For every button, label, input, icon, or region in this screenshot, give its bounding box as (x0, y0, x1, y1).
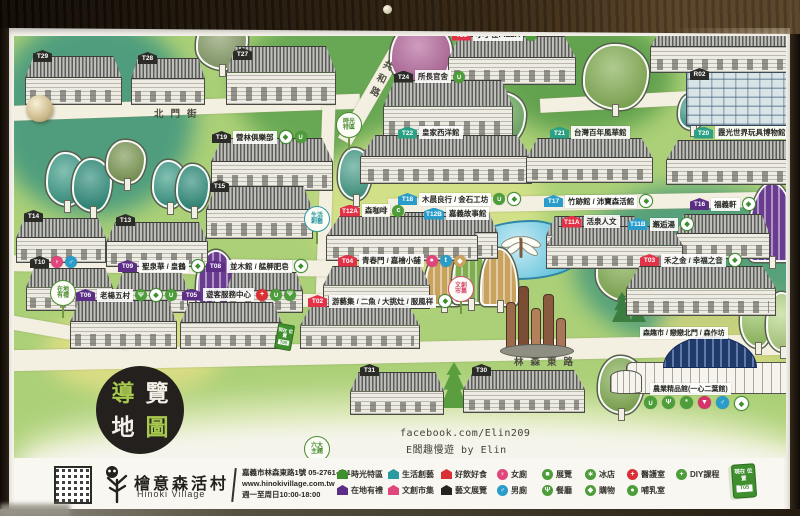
drink-icon: ∪ (644, 396, 657, 409)
marker-T30: T30 (472, 364, 491, 376)
marker-T08: T08 (206, 260, 225, 272)
cross-icon: + (256, 289, 268, 301)
legend-label: 冰店 (599, 469, 615, 480)
contact-info: 嘉義市林森東路1號 05-2761-601 www.hinokivillage.… (242, 467, 351, 500)
poi-T06: T06老楊五村Ψ◆∪ (76, 288, 177, 302)
photo-edge-right (790, 0, 800, 516)
legend-item: +醫護室 (627, 468, 665, 480)
marker-T17: T17 (544, 195, 563, 207)
legend-house-marker (388, 469, 399, 479)
legend-house-marker (337, 485, 348, 495)
address: 嘉義市林森東路1號 05-2761-601 (242, 467, 351, 478)
legend-label: DIY課程 (690, 469, 719, 480)
poi-name: 皇家西洋館 (419, 126, 463, 139)
marker-T28: T28 (138, 52, 157, 64)
building (16, 218, 106, 260)
building (70, 300, 177, 346)
photo-edge-bottom (0, 509, 800, 516)
poi-T27: T27 (233, 48, 252, 60)
building-body (650, 47, 786, 73)
marker-T20: T20 (694, 127, 713, 139)
dome-annex (610, 370, 642, 394)
brand-name-en: Hinoki Village (137, 489, 205, 499)
qr-code (54, 466, 92, 504)
marker-T12A: T12A (340, 205, 360, 217)
legend-item: ●哺乳室 (627, 484, 665, 496)
legend-label: 男廁 (511, 485, 527, 496)
legend-house-marker (441, 469, 452, 479)
credit-facebook: facebook.com/Elin209 (400, 428, 530, 439)
marker-R02: R02 (690, 68, 709, 80)
poi-T29: T29 (33, 50, 52, 62)
legend-item: 在地有禮 (337, 484, 383, 496)
building-roof (300, 306, 420, 326)
poi-name: 聖泉華 / 皇鶴 (139, 260, 189, 273)
poi-T12B: T12B嘉義故事館 (424, 207, 489, 220)
male-icon: ♂ (716, 396, 729, 409)
nursing-icon: ● (627, 485, 638, 496)
food-icon: Ψ (662, 396, 675, 409)
female-icon: ♀ (497, 469, 508, 480)
poi-T04: T04青春門 / 嘉檜小舖●t◆ (338, 254, 466, 267)
marker-T29: T29 (33, 50, 52, 62)
building (300, 306, 420, 346)
legend-item: 時光特區 (337, 468, 383, 480)
marker-T02: T02 (308, 295, 327, 307)
round-tree (106, 140, 146, 184)
poi-T17: T17竹跡館 / 沛寶森活館◆ (544, 194, 653, 208)
legend-label: 醫護室 (641, 469, 665, 480)
legend-item: ∗冰店 (585, 468, 615, 480)
hours: 週一至周日10:00-18:00 (242, 489, 351, 500)
diy-icon: + (676, 469, 687, 480)
drink-icon: ∪ (295, 131, 307, 143)
legend-column: 好飲好食藝文展覽 (441, 468, 487, 496)
legend-column: 生活創藝文創市集 (388, 468, 434, 496)
round-tree (176, 164, 210, 212)
website: www.hinokivillage.com.tw (242, 478, 351, 489)
building (626, 266, 776, 313)
legend-label: 購物 (599, 485, 615, 496)
key-icon: t (440, 255, 452, 267)
poi-name: 福義軒 (711, 198, 740, 211)
photo-of-map-sign: { "sign_title": {"guide_chars": ["導", "覽… (0, 0, 800, 516)
marker-T09: T09 (118, 260, 137, 272)
photo-icon: ● (426, 255, 438, 267)
poi-T14: T14 (24, 210, 43, 222)
building (131, 58, 205, 102)
food-icon: Ψ (525, 36, 537, 41)
drink-icon: ∪ (453, 71, 465, 83)
legend-label: 餐廳 (556, 485, 572, 496)
legend-label: 文創市集 (402, 485, 434, 496)
photo-edge-left (0, 0, 9, 516)
poi-T20: T20霞光世界玩具博物館 (694, 126, 786, 139)
building-body (70, 322, 177, 349)
marker-T11B: T11B (628, 218, 648, 230)
coffee-icon: c (392, 205, 404, 217)
poi-T10: T10♀♂ (30, 256, 77, 268)
marker-T22: T22 (398, 127, 417, 139)
poi-T11B: T11B邂逅湯◆ (628, 217, 694, 231)
marker-T04: T04 (338, 255, 357, 267)
building (350, 372, 444, 412)
poi-T30: T30 (472, 364, 491, 376)
marker-T13: T13 (116, 214, 135, 226)
poi-T28: T28 (138, 52, 157, 64)
you-are-here-label: 現在 位置 (278, 327, 293, 339)
marker-T19: T19 (212, 131, 231, 143)
building (326, 216, 478, 258)
poi-name: 森咖啡 (362, 204, 391, 217)
sculpture-base (500, 344, 574, 358)
building (650, 36, 786, 70)
area-tag: 時光特區 (336, 112, 362, 138)
building (448, 36, 576, 82)
poi-name: 所長官舍 (415, 70, 451, 83)
area-tag: 文創市集 (448, 276, 474, 302)
street-label-beimen: 北門街 (154, 106, 204, 120)
poi-name: 營林俱樂部 (233, 131, 277, 144)
legend-item: +DIY課程 (676, 468, 719, 480)
concrete-corner (0, 504, 70, 516)
poi-name: 老楊五村 (97, 289, 133, 302)
poi-T08: T08並木館 / 艋舺肥皂◆ (206, 259, 308, 273)
guide-char: 地 (112, 416, 135, 439)
poi-name: 木晨良行 / 金石工坊 (419, 193, 491, 206)
marker-T16: T16 (690, 198, 709, 210)
building (463, 370, 585, 410)
legend-item: 好飲好食 (441, 468, 487, 480)
marker-T05: T05 (182, 289, 201, 301)
building-roof (666, 140, 786, 160)
legend-label: 哺乳室 (641, 485, 665, 496)
food-icon: Ψ (135, 289, 147, 301)
legend-label: 時光特區 (351, 469, 383, 480)
area-tag-stem (62, 305, 64, 318)
wood-column-sculpture (506, 280, 566, 354)
guide-map-title: 導 覽 地 圖 (96, 366, 184, 454)
area-tag: 在地有禮 (50, 280, 76, 306)
building (206, 186, 313, 236)
poi-name: 游藝集 / 二魚 / 大挑灶 / 服風祥 (329, 295, 436, 308)
legend-label: 好飲好食 (455, 469, 487, 480)
marker-T15: T15 (210, 180, 229, 192)
poi-name: 嘉義故事館 (446, 207, 490, 220)
poi-T31: T31 (360, 364, 379, 376)
marker-T14: T14 (24, 210, 43, 222)
marker-T24: T24 (394, 71, 413, 83)
legend-item: Ψ餐廳 (542, 484, 572, 496)
male-icon: ♂ (497, 485, 508, 496)
marker-T21: T21 (550, 127, 569, 139)
food-icon: Ψ (284, 289, 296, 301)
divider (231, 468, 237, 502)
poi-T21: T21台灣百年風華館 (550, 126, 630, 139)
building (180, 302, 282, 346)
poi-name: 禾之金 / 幸福之音 (661, 254, 726, 267)
poi-T18: T18木晨良行 / 金石工坊∪◆ (398, 192, 521, 206)
poi-T09: T09聖泉華 / 皇鶴◆ (118, 259, 205, 273)
bag-icon: ◆ (191, 259, 205, 273)
building-body (666, 160, 786, 185)
bag-icon: ◆ (680, 217, 694, 231)
male-icon: ♂ (65, 256, 77, 268)
marker-T10: T10 (30, 256, 49, 268)
building-roof (323, 266, 430, 286)
area-tag-stem (348, 137, 350, 150)
building (526, 138, 653, 180)
guide-char: 圖 (146, 416, 169, 439)
marker-T06: T06 (76, 289, 95, 301)
credit-byline: E闆趣慢遊 by Elin (406, 441, 507, 456)
legend-band: 檜意森活村 Hinoki Village 嘉義市林森東路1號 05-2761-6… (14, 458, 784, 510)
legend-item: ♂男廁 (497, 484, 527, 496)
poi-R02: R02 (690, 68, 709, 80)
bag-icon: ◆ (742, 197, 756, 211)
legend-house-marker (337, 469, 348, 479)
legend-item: ■展覽 (542, 468, 572, 480)
mounting-knob (26, 95, 53, 122)
drink-icon: ∪ (270, 289, 282, 301)
legend-column: ♀女廁♂男廁 (497, 468, 527, 496)
marker-T26: T26 (452, 36, 471, 41)
poi-T03: T03禾之金 / 幸福之音◆ (640, 253, 742, 267)
building-body (131, 79, 205, 105)
illustrated-map: 北門街 共和路 林森東路 導 覽 地 圖 facebook.com/Elin20… (14, 36, 786, 458)
poi-T22: T22皇家西洋館 (398, 126, 463, 139)
poi-T12A: T12A森咖啡c (340, 204, 404, 217)
you-are-here-code: T05 (278, 339, 290, 346)
poi-T16: T16福義軒◆ (690, 197, 756, 211)
drink-icon: ∪ (493, 193, 505, 205)
round-tree (583, 44, 649, 110)
poi-name: 竹跡館 / 沛寶森活館 (565, 195, 637, 208)
bag-icon: ◆ (279, 130, 293, 144)
building-body (463, 390, 585, 413)
legend-label: 在地有禮 (351, 485, 383, 496)
legend-column: 時光特區在地有禮 (337, 468, 383, 496)
building-body (526, 158, 653, 183)
building-body (300, 326, 420, 349)
building-roof (383, 80, 513, 107)
poi-T02: T02游藝集 / 二魚 / 大挑灶 / 服風祥◆ (308, 294, 452, 308)
area-tag: 六大主題 (304, 436, 330, 458)
female-icon: ♀ (51, 256, 63, 268)
poi-T05: T05遊客服務中心+∪Ψ (182, 288, 296, 301)
area-tag: 生活創藝 (304, 206, 330, 232)
marker-T12B: T12B (424, 208, 444, 220)
legend-label: 藝文展覽 (455, 485, 487, 496)
building-roof (626, 266, 776, 289)
poi-T13: T13 (116, 214, 135, 226)
bagtan-icon: ◆ (454, 255, 466, 267)
building-roof (526, 138, 653, 158)
marker-T31: T31 (360, 364, 379, 376)
building-roof (180, 302, 282, 323)
poi-name: 小手在PIZZA (473, 36, 523, 41)
poi-name: 邂逅湯 (650, 218, 679, 231)
legend-item: 生活創藝 (388, 468, 434, 480)
poi-T11A: T11A活泉人文 (562, 215, 620, 228)
building-body (206, 210, 313, 239)
marker-T11A: T11A (562, 216, 582, 228)
legend-label: 女廁 (511, 469, 527, 480)
legend-item: ◆購物 (585, 484, 615, 496)
building-modern (686, 72, 786, 126)
food-icon: Ψ (542, 485, 553, 496)
poi-name: 台灣百年風華館 (571, 126, 630, 139)
leaf-icon: * (680, 396, 693, 409)
icecream-icon: ▼ (698, 396, 711, 409)
bag-icon: ◆ (639, 194, 653, 208)
legend-column: +DIY課程 (676, 468, 719, 480)
poi-name: 霞光世界玩具博物館 (715, 126, 786, 139)
shop-strip-label: 森趣市 / 戀戀北門 / 森作坊 (640, 327, 728, 339)
screw-icon (383, 5, 392, 14)
legend-column: ■展覽Ψ餐廳 (542, 468, 572, 496)
exhibit-icon: ■ (542, 469, 553, 480)
building-body (360, 157, 532, 184)
legend-house-marker (441, 485, 452, 495)
poi-T15: T15 (210, 180, 229, 192)
legend-item: 文創市集 (388, 484, 434, 496)
ice-icon: ∗ (585, 469, 596, 480)
building-body (226, 73, 336, 105)
bag-icon: ◆ (734, 396, 749, 411)
poi-T24: T24所長官舍∪ (394, 70, 465, 83)
poi-name: 並木館 / 艋舺肥皂 (227, 260, 292, 273)
guide-char: 導 (112, 382, 135, 405)
poi-name: 遊客服務中心 (203, 288, 254, 301)
marker-T03: T03 (640, 254, 659, 266)
building (360, 135, 532, 181)
you-are-here-code: T05 (736, 484, 752, 492)
guide-char: 覽 (146, 382, 169, 405)
poi-name: 活泉人文 (584, 215, 620, 228)
building-body (350, 392, 444, 415)
hinoki-village-logo (102, 464, 132, 504)
legend-column: ∗冰店◆購物 (585, 468, 615, 496)
legend-house-marker (388, 485, 399, 495)
bag-icon: ◆ (294, 259, 308, 273)
you-are-here-legend-sign: 現在 位置T05 (731, 463, 757, 499)
legend-label: 展覽 (556, 469, 572, 480)
poi-name: 青春門 / 嘉檜小舖 (359, 254, 424, 267)
marker-T27: T27 (233, 48, 252, 60)
area-tag-stem (316, 231, 318, 244)
legend-item: ♀女廁 (497, 468, 527, 480)
building-body (180, 323, 282, 349)
cross-icon: + (627, 469, 638, 480)
you-are-here-label: 現在 位置 (734, 468, 752, 481)
bag-icon: ◆ (507, 192, 521, 206)
legend-column: +醫護室●哺乳室 (627, 468, 665, 496)
bag-icon: ◆ (149, 288, 163, 302)
bag2-icon: ◆ (585, 485, 596, 496)
poi-T19: T19營林俱樂部◆∪ (212, 130, 307, 144)
legend-label: 生活創藝 (402, 469, 434, 480)
building (666, 140, 786, 182)
building-roof (70, 300, 177, 322)
poi-T26: T26小手在PIZZAΨ (452, 36, 537, 41)
dome-name: 農業精品館(一心二葉館) (650, 383, 731, 395)
building (106, 222, 208, 264)
area-tag-stem (460, 301, 462, 314)
legend-item: 藝文展覽 (441, 484, 487, 496)
building-body (626, 289, 776, 316)
building-roof (650, 36, 786, 47)
drink-icon: ∪ (165, 289, 177, 301)
bag-icon: ◆ (728, 253, 742, 267)
building (211, 138, 333, 188)
